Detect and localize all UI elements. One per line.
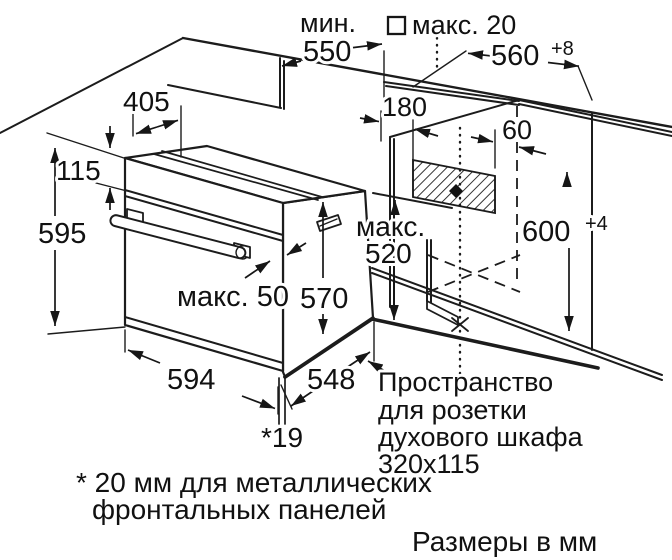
dim-60-label: 60 [502, 115, 532, 145]
dim-594-right [242, 396, 275, 409]
niche-hidden-bottom-edge-1 [428, 255, 520, 292]
dim-594-label: 594 [167, 364, 215, 396]
dim-max50-label: макс. 50 [177, 281, 289, 313]
dim-60-left-arrow [471, 137, 493, 142]
dim-595-label: 595 [38, 218, 86, 250]
dim-180-label: 180 [382, 92, 427, 122]
dim-560-right-arrow [548, 63, 579, 67]
dim-520-label: 520 [365, 238, 412, 269]
centerline-cross-mark [452, 318, 468, 331]
dim-594-left [128, 350, 160, 363]
footnote-line2: фронтальных панелей [92, 494, 386, 525]
dim-560-label: 560 [491, 40, 539, 72]
dim-560-tolerance: +8 [551, 38, 574, 60]
niche-bottom-front-edge [372, 268, 662, 380]
oven [109, 146, 373, 377]
dim-550-label: 550 [303, 36, 351, 68]
ext-panel-bottom [96, 183, 127, 191]
dim-115-label: 115 [56, 155, 101, 186]
dim-180-left-arrow [360, 118, 379, 122]
dim-405-label: 405 [123, 86, 170, 117]
dim-405-right-arrow [157, 120, 178, 127]
dim-600-label: 600 [522, 216, 570, 248]
units-note: Размеры в мм [412, 526, 597, 557]
niche-hidden-bottom-edge-2 [428, 255, 520, 292]
ext-bottom-left [48, 327, 125, 334]
dim-180-right-arrow [415, 129, 438, 136]
socket-note-line2: для розетки [378, 395, 527, 425]
right-worktop-front-edge [519, 100, 672, 136]
socket-space [413, 160, 495, 213]
left-worktop-front-edge [168, 85, 281, 108]
min-label: мин. [300, 8, 356, 38]
dim-570-label: 570 [300, 283, 348, 315]
niche-interior-foot [427, 301, 458, 325]
oven-installation-diagram: мин. 550 макс. 20 560 +8 405 115 595 180… [0, 0, 672, 560]
dim-548-label: 548 [307, 364, 355, 396]
dim-60-right-arrow [519, 147, 546, 154]
dim-405-left-arrow [136, 127, 157, 134]
dim-550-right-arrow [350, 44, 382, 48]
gap-square-symbol [388, 17, 405, 34]
socket-note-line1: Пространство [378, 367, 553, 397]
wall-top-edge [183, 38, 672, 127]
dim-max20-label: макс. 20 [412, 10, 516, 40]
installation-drawing: мин. 550 макс. 20 560 +8 405 115 595 180… [0, 0, 672, 560]
dim-600-tolerance: +4 [585, 213, 608, 235]
socket-note-line3: духового шкафа [378, 422, 584, 452]
dim-19-label: *19 [261, 422, 303, 453]
dim-19-ticks [279, 378, 285, 424]
